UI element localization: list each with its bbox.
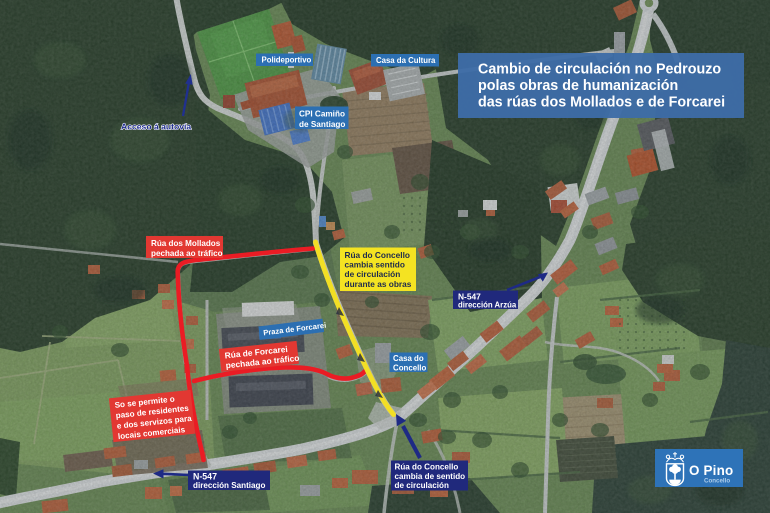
svg-text:dirección Santiago: dirección Santiago [193,481,265,490]
svg-text:CPI Camiño: CPI Camiño [299,110,345,119]
svg-text:Concello: Concello [704,478,730,485]
svg-text:Rúa do Concello: Rúa do Concello [395,463,459,472]
svg-text:de circulación: de circulación [395,481,449,490]
svg-text:polas obras de humanización: polas obras de humanización [478,78,678,94]
svg-text:pechada ao tráfico: pechada ao tráfico [151,249,223,258]
svg-text:cambia de sentido: cambia de sentido [395,472,466,481]
svg-text:Casa da Cultura: Casa da Cultura [376,56,436,65]
svg-text:durante as obras: durante as obras [345,279,412,289]
svg-text:Polideportivo: Polideportivo [262,56,312,65]
svg-text:Concello: Concello [393,364,426,373]
svg-text:das rúas dos Mollados e de For: das rúas dos Mollados e de Forcarei [478,95,725,111]
svg-text:Casa do: Casa do [393,354,424,363]
svg-text:de circulación: de circulación [345,269,401,279]
svg-text:dirección Arzúa: dirección Arzúa [458,301,517,310]
svg-text:de Santiago: de Santiago [299,120,345,129]
svg-text:cambia sentido: cambia sentido [345,260,405,270]
svg-text:O Pino: O Pino [689,463,733,478]
svg-text:N-547: N-547 [193,472,217,482]
svg-text:Cambio de circulación no Pedr: Cambio de circulación no Pedrouzo [478,62,721,78]
svg-text:Acceso á autovía: Acceso á autovía [121,122,191,132]
svg-text:Rúa do Concello: Rúa do Concello [345,250,410,260]
svg-text:Rúa dos Mollados: Rúa dos Mollados [151,239,221,248]
